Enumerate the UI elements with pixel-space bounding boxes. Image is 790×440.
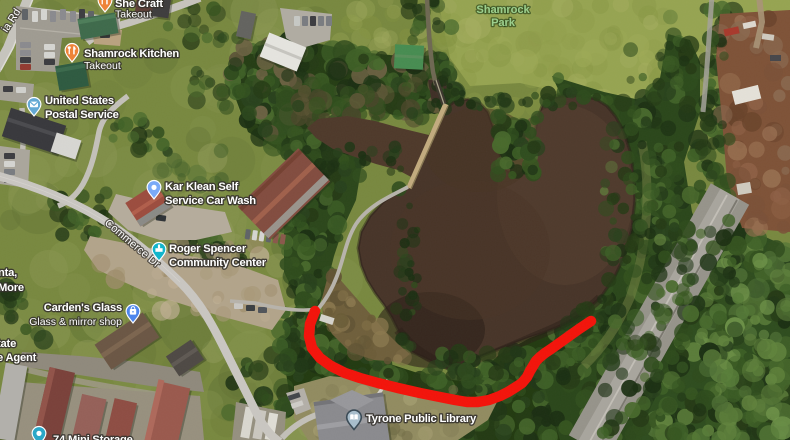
- svg-text:Tyrone Public Library: Tyrone Public Library: [366, 413, 477, 425]
- svg-text:More: More: [0, 282, 24, 294]
- svg-text:Park: Park: [491, 17, 516, 29]
- svg-text:Postal Service: Postal Service: [45, 109, 119, 121]
- svg-text:Shamrock: Shamrock: [476, 4, 530, 16]
- svg-text:Community Center: Community Center: [169, 257, 267, 269]
- svg-text:Carden's Glass: Carden's Glass: [44, 302, 122, 314]
- svg-text:nta,: nta,: [0, 267, 17, 279]
- svg-text:Kar Klean Self: Kar Klean Self: [165, 181, 239, 193]
- svg-text:e Agent: e Agent: [0, 352, 37, 364]
- svg-text:Roger Spencer: Roger Spencer: [169, 243, 247, 255]
- svg-text:Glass & mirror shop: Glass & mirror shop: [29, 316, 122, 328]
- svg-text:United States: United States: [45, 95, 114, 107]
- svg-text:Shamrock Kitchen: Shamrock Kitchen: [84, 48, 179, 60]
- svg-text:Takeout: Takeout: [84, 60, 121, 72]
- svg-text:Service Car Wash: Service Car Wash: [165, 195, 256, 207]
- svg-text:74 Mini Storage: 74 Mini Storage: [53, 434, 133, 440]
- svg-text:tate: tate: [0, 338, 16, 350]
- svg-text:Takeout: Takeout: [115, 9, 152, 21]
